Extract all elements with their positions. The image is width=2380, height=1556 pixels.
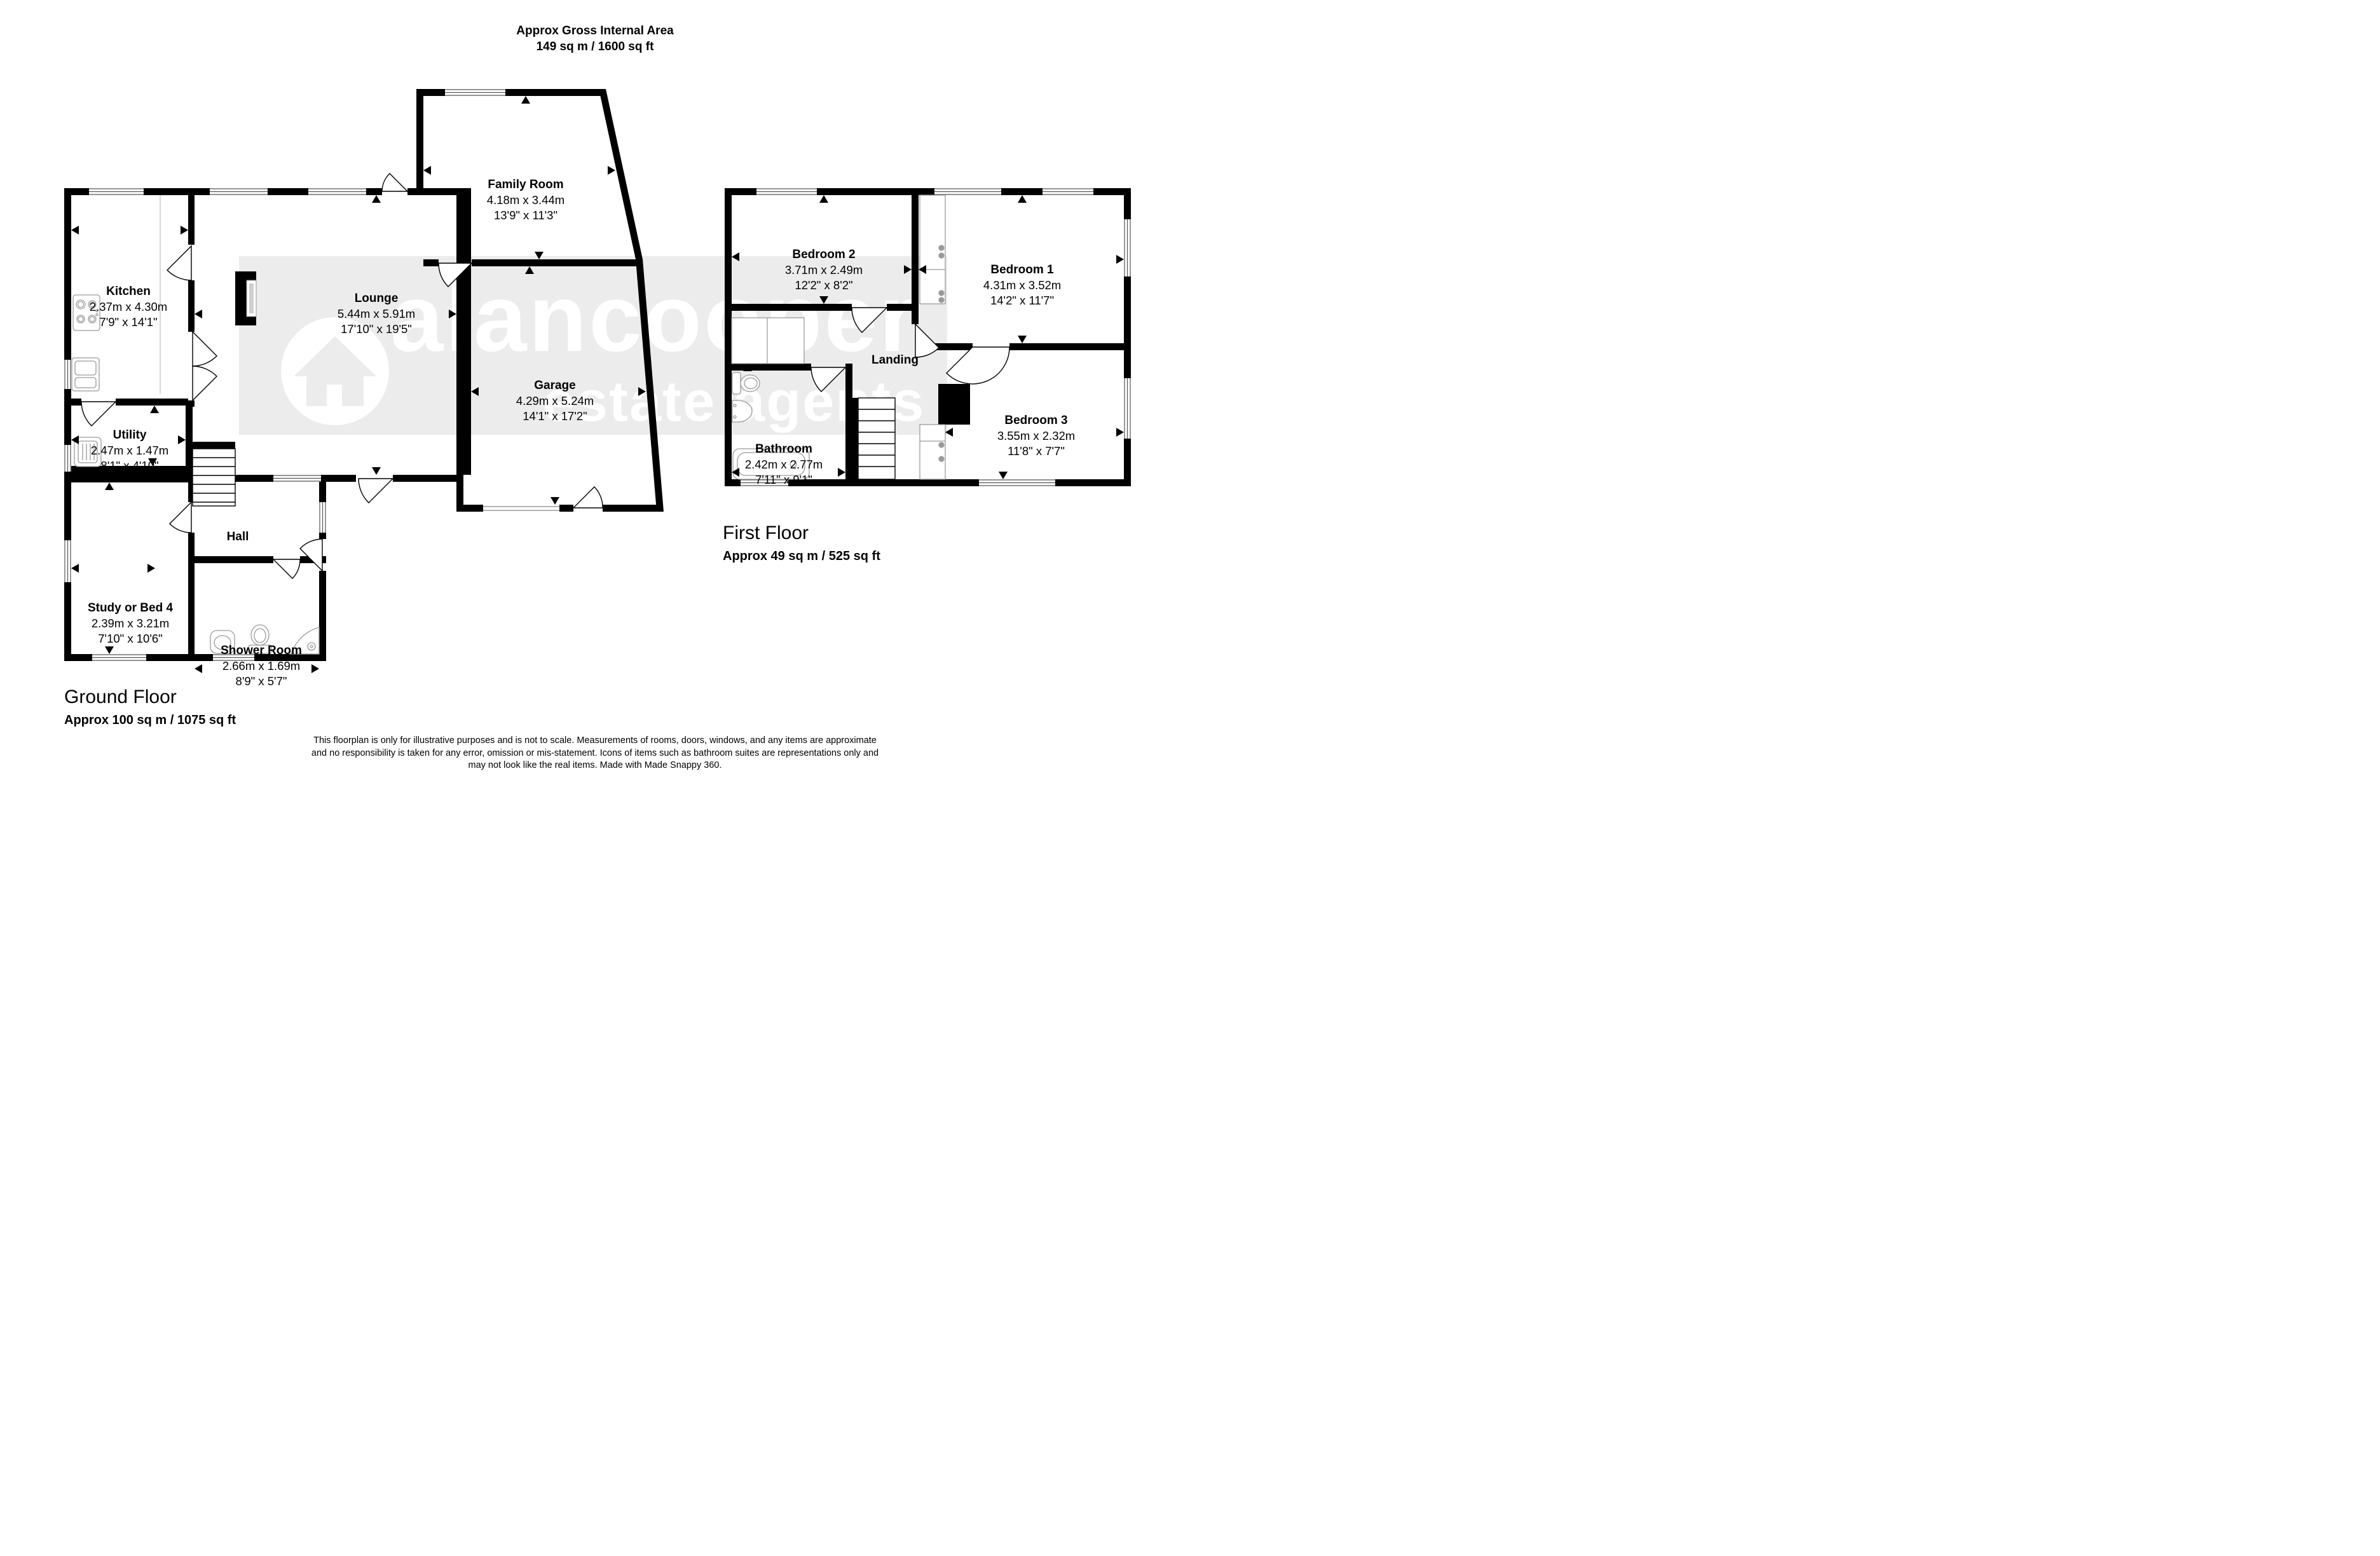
room-imperial: 12'2" x 8'2" [728, 278, 919, 293]
room-label-bedroom-3: Bedroom 3 3.55m x 2.32m 11'8" x 7'7" [941, 413, 1132, 459]
room-metric: 2.42m x 2.77m [688, 457, 879, 472]
room-metric: 4.18m x 3.44m [430, 193, 621, 208]
room-name: Bedroom 2 [728, 247, 919, 263]
sink-icon [732, 400, 752, 422]
floor-name: Ground Floor [64, 686, 236, 708]
room-name: Garage [460, 378, 650, 393]
room-metric: 3.55m x 2.32m [941, 428, 1132, 444]
room-label-family-room: Family Room 4.18m x 3.44m 13'9" x 11'3" [430, 177, 621, 223]
room-imperial: 14'1" x 17'2" [460, 409, 650, 424]
room-imperial: 8'1" x 4'10" [34, 458, 225, 474]
room-name: Landing [800, 353, 990, 368]
disclaimer-line2: and no responsibility is taken for any e… [86, 747, 1104, 760]
disclaimer: This floorplan is only for illustrative … [86, 735, 1104, 772]
room-label-landing: Landing [800, 353, 990, 368]
floorplan-page: alancooper estate agents [0, 0, 1190, 778]
room-name: Utility [34, 428, 225, 443]
room-metric: 2.66m x 1.69m [166, 659, 357, 674]
walls [64, 89, 664, 661]
room-name: Bedroom 1 [927, 263, 1118, 278]
airing-cupboard [732, 318, 804, 364]
room-imperial: 7'9" x 14'1" [33, 315, 224, 330]
room-label-shower-room: Shower Room 2.66m x 1.69m 8'9" x 5'7" [166, 643, 357, 689]
room-label-lounge: Lounge 5.44m x 5.91m 17'10" x 19'5" [281, 291, 472, 337]
room-metric: 2.37m x 4.30m [33, 299, 224, 315]
room-name: Study or Bed 4 [35, 601, 226, 616]
windows [64, 89, 559, 661]
room-name: Kitchen [33, 284, 224, 299]
room-metric: 4.31m x 3.52m [927, 278, 1118, 293]
page-title-line2: 149 sq m / 1600 sq ft [404, 39, 786, 55]
room-name: Family Room [430, 177, 621, 193]
disclaimer-line1: This floorplan is only for illustrative … [86, 735, 1104, 747]
room-name: Hall [142, 529, 333, 545]
room-imperial: 14'2" x 11'7" [927, 293, 1118, 308]
room-label-bedroom-1: Bedroom 1 4.31m x 3.52m 14'2" x 11'7" [927, 263, 1118, 308]
room-metric: 5.44m x 5.91m [281, 306, 472, 322]
room-label-hall: Hall [142, 529, 333, 545]
door-arcs [811, 308, 1009, 392]
room-imperial: 7'11" x 9'1" [688, 472, 879, 488]
room-label-bedroom-2: Bedroom 2 3.71m x 2.49m 12'2" x 8'2" [728, 247, 919, 293]
kitchen-sink-icon [72, 358, 99, 391]
page-title-line1: Approx Gross Internal Area [404, 23, 786, 39]
floor-area: Approx 49 sq m / 525 sq ft [723, 549, 880, 564]
ground-floor-caption: Ground Floor Approx 100 sq m / 1075 sq f… [64, 686, 236, 728]
fireplace-icon [247, 280, 256, 317]
room-metric: 4.29m x 5.24m [460, 393, 650, 409]
floor-area: Approx 100 sq m / 1075 sq ft [64, 713, 236, 728]
room-metric: 3.71m x 2.49m [728, 263, 919, 278]
room-imperial: 13'9" x 11'3" [430, 208, 621, 223]
floor-name: First Floor [723, 522, 880, 544]
room-metric: 2.47m x 1.47m [34, 443, 225, 458]
room-name: Shower Room [166, 643, 357, 659]
room-name: Lounge [281, 291, 472, 306]
room-label-kitchen: Kitchen 2.37m x 4.30m 7'9" x 14'1" [33, 284, 224, 330]
room-name: Bathroom [688, 442, 879, 457]
disclaimer-line3: may not look like the real items. Made w… [86, 760, 1104, 772]
page-title: Approx Gross Internal Area 149 sq m / 16… [404, 23, 786, 55]
room-imperial: 11'8" x 7'7" [941, 444, 1132, 459]
room-imperial: 17'10" x 19'5" [281, 322, 472, 337]
room-metric: 2.39m x 3.21m [35, 616, 226, 631]
room-label-bathroom: Bathroom 2.42m x 2.77m 7'11" x 9'1" [688, 442, 879, 488]
room-label-study: Study or Bed 4 2.39m x 3.21m 7'10" x 10'… [35, 601, 226, 646]
room-name: Bedroom 3 [941, 413, 1132, 428]
room-label-utility: Utility 2.47m x 1.47m 8'1" x 4'10" [34, 428, 225, 474]
toilet-icon [732, 372, 760, 394]
room-label-garage: Garage 4.29m x 5.24m 14'1" x 17'2" [460, 378, 650, 424]
door-arcs [81, 174, 603, 578]
first-floor-caption: First Floor Approx 49 sq m / 525 sq ft [723, 522, 880, 564]
